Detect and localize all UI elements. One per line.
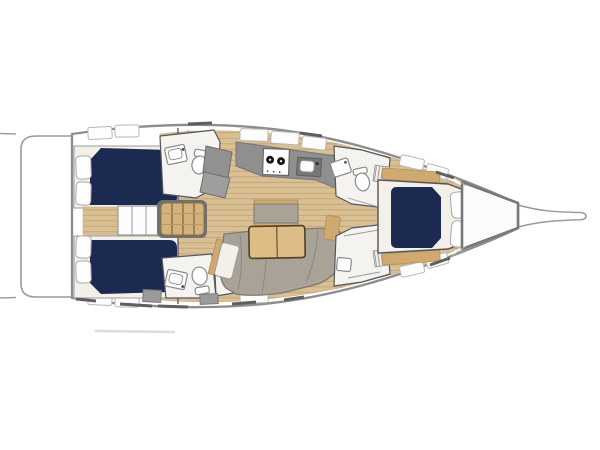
hull-stub-line-bottom <box>0 298 16 299</box>
bench-cushion <box>254 204 298 223</box>
sink-bowl <box>300 160 315 172</box>
sink <box>165 269 188 290</box>
pillow <box>76 261 92 284</box>
locker <box>115 125 139 137</box>
joint-mark <box>188 123 212 124</box>
pillow <box>76 156 92 180</box>
shower-seat <box>336 257 351 271</box>
vanity-unit <box>143 290 162 303</box>
table-seam <box>277 226 278 258</box>
stove <box>263 149 290 176</box>
sink-basin <box>164 144 187 165</box>
corridor-floor <box>83 207 118 235</box>
corridor-cabinet <box>118 206 160 235</box>
hull-stub-line-top <box>0 134 16 135</box>
salon-table <box>249 226 306 259</box>
bowsprit <box>518 205 586 227</box>
joint-mark <box>120 304 152 306</box>
joint-mark <box>76 299 96 301</box>
locker <box>301 136 326 151</box>
locker <box>88 126 113 139</box>
salon-bench <box>254 200 298 227</box>
galley-sink <box>296 157 321 177</box>
hull-shadow-line <box>95 331 175 332</box>
locker <box>271 131 300 145</box>
anchor-locker <box>462 182 518 249</box>
aft-cabin-starboard <box>74 236 178 304</box>
joint-mark <box>232 302 256 304</box>
stove-top <box>263 149 290 176</box>
yacht-floor-plan <box>0 0 600 450</box>
locker <box>240 129 268 142</box>
pillow <box>76 182 92 206</box>
pillow <box>76 236 92 259</box>
sink <box>164 144 187 165</box>
joint-mark <box>158 306 188 307</box>
island-berth <box>391 187 441 248</box>
swim-platform <box>21 136 72 297</box>
vanity-unit <box>200 294 218 305</box>
